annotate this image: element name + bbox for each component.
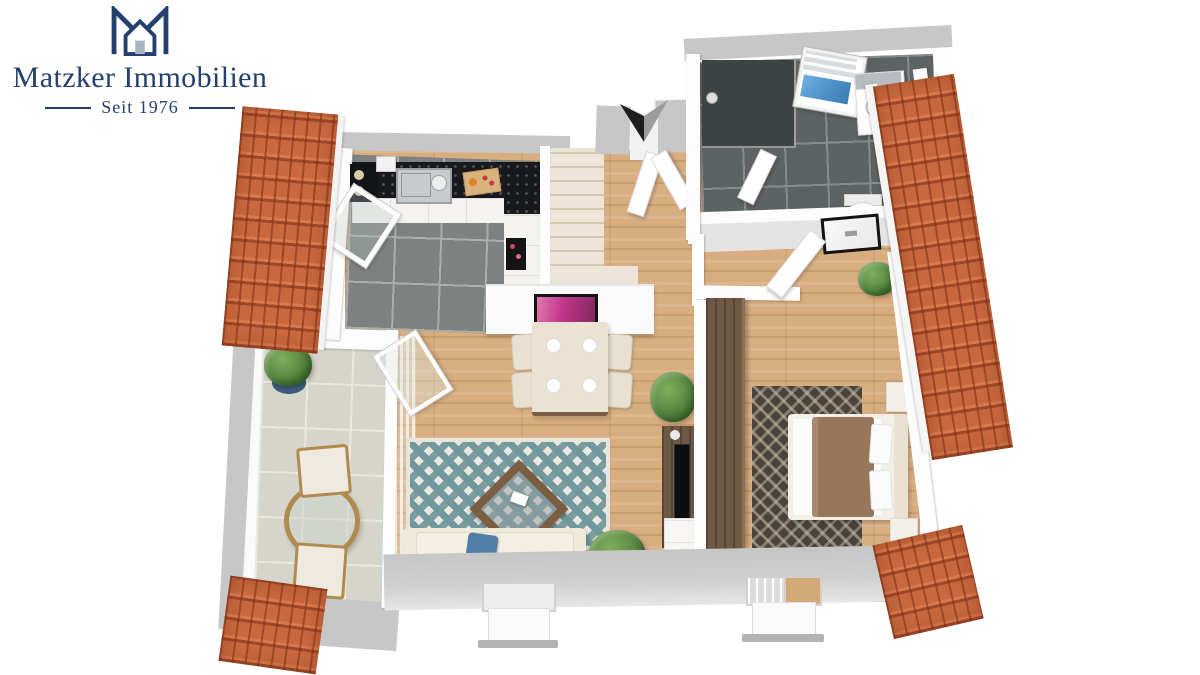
terrace-chair-top <box>296 444 352 498</box>
dining-chair <box>605 333 633 371</box>
dormer-body <box>488 608 550 644</box>
roof-slope-left-lower <box>218 576 327 675</box>
dining-chair <box>605 371 633 409</box>
dormer-sill <box>742 634 824 642</box>
food-icon <box>482 175 488 181</box>
kitchen-sink-icon <box>396 168 452 204</box>
m-house-logo-icon <box>109 6 171 56</box>
north-arrow-icon <box>616 96 672 148</box>
dining-table <box>532 322 608 416</box>
brand-logo: Matzker Immobilien Seit 1976 <box>8 6 272 118</box>
dining-plant-icon <box>650 372 696 422</box>
pot-icon <box>354 170 364 180</box>
book-icon <box>510 491 529 507</box>
dormer-window <box>478 582 558 660</box>
kitchen-flower-icon <box>516 254 521 259</box>
shower <box>702 60 796 148</box>
bed-pillow <box>869 423 894 464</box>
coffee-machine-icon <box>376 156 396 172</box>
cutting-board-icon <box>463 168 502 197</box>
tagline-rule-left <box>45 107 91 109</box>
food-icon <box>489 180 495 186</box>
bed-blanket <box>812 417 874 517</box>
food-icon <box>468 178 477 187</box>
faucet-icon <box>431 175 447 191</box>
roof-slope-bottom-right <box>872 525 983 639</box>
brand-title: Matzker Immobilien <box>8 61 272 95</box>
plate-icon <box>582 378 597 393</box>
tv-panel-light <box>670 430 680 440</box>
dormer-window <box>742 576 824 656</box>
plate-icon <box>582 338 597 353</box>
plate-icon <box>546 378 561 393</box>
brand-tagline: Seit 1976 <box>101 97 179 118</box>
bed-pillow <box>869 469 893 510</box>
shower-head-icon <box>706 92 718 104</box>
sink-basin <box>401 173 431 197</box>
plate-icon <box>546 338 561 353</box>
headboard <box>894 414 908 520</box>
kitchen-flower-icon <box>510 244 515 249</box>
living-bedroom-wall <box>694 300 706 558</box>
floorplan-page: Matzker Immobilien Seit 1976 <box>0 0 1200 675</box>
tagline-rule-right <box>189 107 235 109</box>
hall-bathroom-wall <box>688 148 700 244</box>
wardrobe <box>706 298 745 582</box>
bed <box>788 414 908 520</box>
roof-window <box>821 214 882 255</box>
tv-screen <box>674 444 690 520</box>
roof-window-handle <box>845 230 857 236</box>
dormer-body <box>752 602 816 638</box>
dormer-sill <box>478 640 558 648</box>
brand-tagline-row: Seit 1976 <box>8 97 272 118</box>
